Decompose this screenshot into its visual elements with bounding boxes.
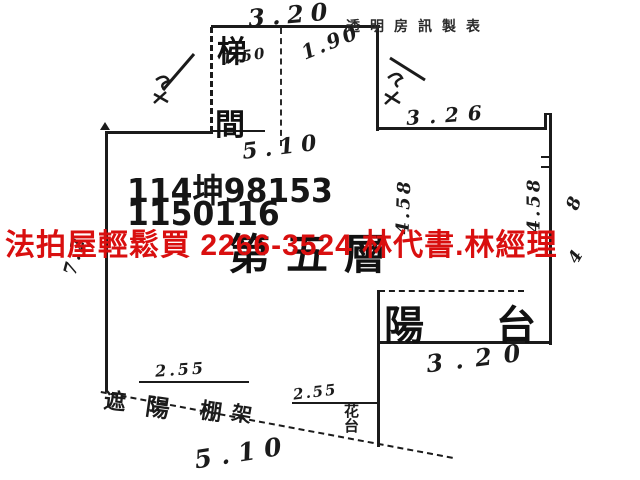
slant-note-char: 棚: [198, 393, 224, 428]
stair-divider-dashed: [280, 28, 282, 146]
dimension-bracket-a: [139, 381, 249, 383]
slant-note-char: 架: [230, 396, 255, 428]
slant-note-char: 遮: [102, 383, 127, 417]
upper-right-wall: [377, 127, 546, 130]
floorplan-scan: 透明房訊製表 114坤98153 1150116 第五層 梯 間 陽台 法拍屋輕…: [0, 0, 640, 480]
balcony-top-dashed: [379, 290, 524, 292]
top-left-wall: [105, 131, 213, 134]
step-vertical-wall: [544, 113, 547, 130]
watermark-ad-text: 法拍屋輕鬆買 2266-3524 林代書.林經理: [5, 220, 557, 264]
dim-bottom-b: 2.55: [292, 380, 338, 403]
flower-stand-label: 花台: [344, 404, 362, 434]
wall-tick: [541, 156, 549, 158]
balcony-left-wall: [377, 290, 380, 343]
dim-below-stair: 5.10: [241, 129, 325, 165]
handwritten-swing-mark-icon: [380, 52, 430, 107]
handwritten-swing-mark-icon: [148, 50, 203, 105]
publisher-label: 透明房訊製表: [346, 16, 490, 36]
stairwell-char-bottom: 間: [215, 100, 245, 144]
dim-bottom: 5.10: [192, 431, 292, 475]
wall-tick: [541, 166, 549, 168]
dim-right-wall-c-top: 8: [562, 194, 586, 213]
lower-right-wall: [377, 341, 380, 447]
stair-left-wall-dashed: [210, 27, 213, 132]
stair-right-wall: [376, 25, 379, 131]
slant-note-char: 陽: [144, 387, 173, 425]
wall-arrow-tick: [100, 122, 110, 130]
dim-right-wall-c-bottom: 4: [564, 247, 587, 267]
dim-bottom-a: 2.55: [154, 358, 206, 381]
